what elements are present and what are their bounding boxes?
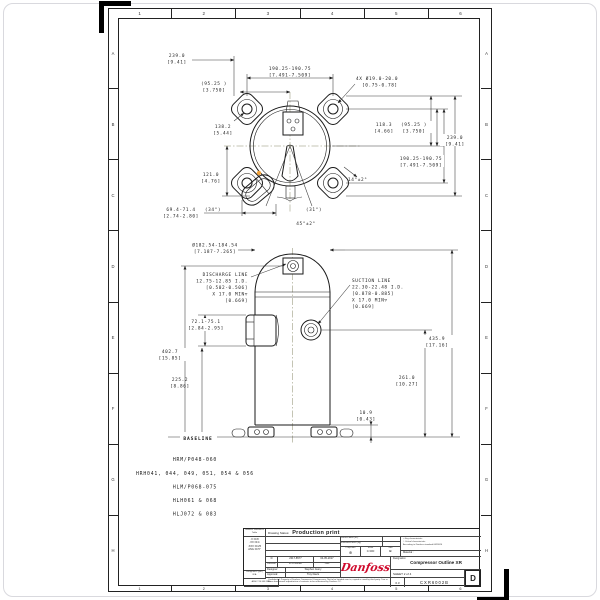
sheet-label: SHEET 2 of 4 <box>391 570 465 578</box>
dim-h225-mm: 225.2 <box>172 377 188 383</box>
discharge-note-2: [0.502-0.506] <box>206 285 248 291</box>
dim-h402-mm: 402.7 <box>162 349 178 355</box>
baseline-label: BASELINE <box>183 436 212 442</box>
dim-h10-in: [0.43] <box>356 417 375 423</box>
revision-history-row <box>266 537 341 544</box>
scale-value: 0.300 <box>361 550 380 554</box>
drawing-sheet: 1 2 3 4 5 6 1 2 3 4 5 6 A B C D E F G H … <box>0 0 600 600</box>
dim-side-mm: 118.3 <box>376 122 392 128</box>
dim-half-span-mm: (95.25 ) <box>201 81 227 87</box>
scale-small: 0.3 <box>391 578 405 587</box>
suction-fitting <box>301 320 321 340</box>
terminal-box <box>283 112 303 135</box>
dim-overall-right-in: [9.41] <box>445 142 464 148</box>
designation-value: Compressor Outline XR <box>391 560 481 565</box>
model-line: HLM/P068-075 <box>173 485 217 491</box>
dim-h261-in: [10.27] <box>396 382 419 388</box>
dim-glass-mm: 69.4-71.4 <box>166 207 195 213</box>
danfoss-logo: Danfoss <box>341 557 391 578</box>
dim-overall-right-mm: 239.0 <box>447 135 463 141</box>
discharge-note-4: [0.669] <box>225 298 248 304</box>
suction-note-3: X 17.0 MIN▽ <box>352 298 388 304</box>
dim-diag-in: [5.44] <box>213 131 232 137</box>
size-cell: Size B <box>381 547 401 557</box>
dim-shell-dia-mm: Ø182.54-184.54 <box>192 242 237 249</box>
suction-note-4: [0.669] <box>352 304 375 310</box>
dim-glass-in: [2.74-2.80] <box>163 214 199 220</box>
model-line: HRH041, 044, 049, 051, 054 & 056 <box>136 471 254 477</box>
dim-h261-mm: 261.0 <box>399 375 415 381</box>
dim-half-span-right-in: [3.750] <box>403 129 426 135</box>
dim-lower-in: [4.76] <box>201 179 220 185</box>
drawing-status-label: Drawing Status: <box>268 531 289 535</box>
dim-diag-mm: 138.2 <box>215 124 231 130</box>
third-angle-projection-icon: ⊕ <box>341 550 360 555</box>
dim-half-span-in: [3.750] <box>203 88 226 94</box>
designation-cell: Designation Compressor Outline XR <box>391 557 481 570</box>
dim-angle-14: 14°±2° <box>348 177 367 183</box>
dim-h10-mm: 10.9 <box>360 410 373 416</box>
suction-note-0: SUCTION LINE <box>352 278 391 284</box>
suction-note-2: [0.878-0.885] <box>352 291 394 297</box>
scale-cell: Scale 0.300 <box>361 547 381 557</box>
model-line: HRM/P048-060 <box>173 457 217 463</box>
dim-holes-mm: 4X Ø19.0-20.0 <box>356 75 398 82</box>
roughness-value: N/A <box>244 574 265 577</box>
confidential-note: Confidential: Property of Danfoss Commer… <box>266 578 391 587</box>
danfoss-logo-text: Danfoss <box>341 562 391 573</box>
dim-h72-in: [2.84-2.95] <box>188 326 224 332</box>
dim-half-span-right-mm: (95.25 ) <box>401 122 427 128</box>
bottom-stub <box>286 186 295 198</box>
top-view-dimension-text: 239.0 [9.41] 190.25-190.75 [7.491-7.509]… <box>163 53 470 227</box>
top-view: 239.0 [9.41] 190.25-190.75 [7.491-7.509]… <box>163 53 470 227</box>
dim-bolt-span-in: [7.491-7.509] <box>269 73 311 79</box>
suction-note-1: 22.30-22.48 I.D. <box>352 285 404 291</box>
dim-h435-mm: 435.9 <box>429 336 445 342</box>
dim-holes-in: [0.75-0.78] <box>362 83 398 89</box>
standard-note: According to Danfoss standard 0623024 <box>403 544 481 547</box>
dim-bolt-span-mm: 190.25-190.75 <box>269 66 311 72</box>
title-block: General Tolerances Table .X ±0.8 .XX ±0.… <box>243 528 480 586</box>
dim-h225-in: [8.86] <box>170 384 189 390</box>
tolerance-table: .X ±0.8 .XX ±0.4 .XXX ±0.25 ANG ±0.5° <box>244 537 266 571</box>
roughness-cell: Roughness (µm) N/A <box>244 571 266 579</box>
model-line: HLH061 & 068 <box>173 498 217 504</box>
drawing-status-row: Drawing Status: Production print <box>266 529 481 537</box>
projection-cell: Projection ⊕ <box>341 547 361 557</box>
side-view: Ø182.54-184.54 [7.187-7.265] DISCHARGE L… <box>154 242 460 444</box>
dim-angle-34: (34°) <box>205 207 221 213</box>
key-characteristic-label: Key characteristic: <box>405 538 423 540</box>
dim-bolt-span-right-mm: 190.25-190.75 <box>400 156 442 162</box>
revision-history-row <box>266 544 341 551</box>
tolerance-table-header: General Tolerances Table <box>244 529 266 537</box>
dim-h72-mm: 72.1-75.1 <box>191 319 220 325</box>
dim-overall-mm: 239.0 <box>169 53 185 59</box>
dim-shell-dia-in: [7.187-7.265] <box>194 249 236 255</box>
dim-h435-in: [17.16] <box>426 343 449 349</box>
critical-characteristic-label: Critical characteristic: <box>405 541 426 543</box>
orange-marker-dot <box>257 171 261 175</box>
drawing-status-value: Production print <box>292 530 340 536</box>
compressor-drawing: 239.0 [9.41] 190.25-190.75 [7.491-7.509]… <box>0 0 600 600</box>
dim-angle-45: 45°±2° <box>296 221 315 227</box>
discharge-note-3: X 17.0 MIN▽ <box>212 292 248 298</box>
dim-side-in: [4.66] <box>374 129 393 135</box>
dim-angle-31: (31°) <box>306 207 322 213</box>
model-list: HRM/P048-060 HRH041, 044, 049, 051, 054 … <box>136 457 254 518</box>
dim-h402-in: [15.85] <box>159 356 182 362</box>
tolerance-row: ANG ±0.5° <box>244 548 265 551</box>
characteristics-box: □ Key characteristic: ○ Critical charact… <box>401 537 481 551</box>
discharge-note-1: 12.75-12.85 I.D. <box>196 279 248 285</box>
dim-bolt-span-right-in: [7.491-7.509] <box>400 163 442 169</box>
model-line: HLJ072 & 083 <box>173 512 217 518</box>
side-view-dimension-text: Ø182.54-184.54 [7.187-7.265] DISCHARGE L… <box>154 242 454 443</box>
size-value: B <box>381 550 400 554</box>
dim-overall-in: [9.41] <box>167 60 186 66</box>
discharge-note-0: DISCHARGE LINE <box>203 272 248 278</box>
dim-lower-mm: 121.0 <box>203 172 219 178</box>
drawing-number: CXR6002B <box>405 578 465 587</box>
rotalock-fitting <box>246 315 279 346</box>
sheet-size: D <box>465 570 481 587</box>
